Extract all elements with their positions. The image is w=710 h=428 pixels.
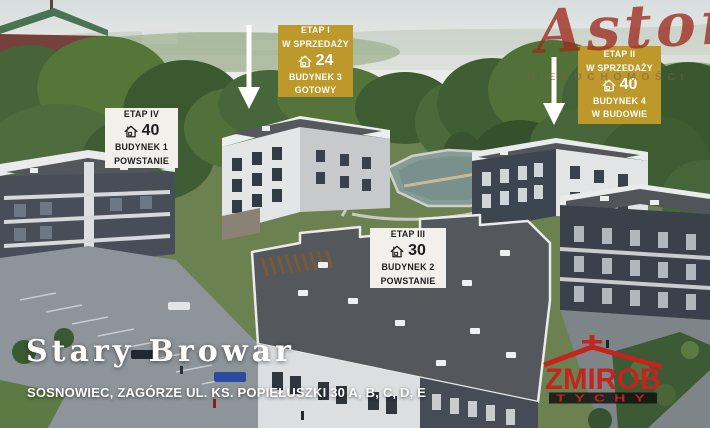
build-status: GOTOWY	[295, 84, 336, 98]
etap-stage: ETAP I	[301, 24, 330, 38]
units-row: 40	[602, 76, 638, 94]
house-icon	[602, 79, 616, 92]
units-count: 40	[142, 122, 160, 140]
callout-etap-3: ETAP III 30 BUDYNEK 2 POWSTANIE	[370, 228, 446, 288]
logo-city: TYCHY	[556, 394, 654, 405]
etap-stage: ETAP III	[391, 228, 425, 242]
etap-stage: ETAP IV	[124, 108, 159, 122]
build-status: W BUDOWIE	[592, 108, 648, 122]
units-count: 30	[408, 242, 426, 260]
build-status: POWSTANIE	[114, 155, 169, 169]
units-row: 24	[298, 52, 334, 70]
building-name: BUDYNEK 1	[115, 141, 168, 155]
units-count: 40	[620, 76, 638, 94]
project-address: SOSNOWIEC, ZAGÓRZE UL. KS. POPIEŁUSZKI 3…	[27, 385, 426, 400]
house-icon	[390, 245, 404, 258]
project-name: Stary Browar	[26, 334, 295, 369]
arrow-down-icon	[543, 57, 565, 125]
logo-name: ZMIROB	[545, 363, 661, 396]
house-icon	[298, 55, 312, 68]
etap-sale-status: W SPRZEDAŻY	[586, 62, 653, 76]
build-status: POWSTANIE	[381, 275, 436, 289]
callout-etap-2: ETAP II W SPRZEDAŻY 40 BUDYNEK 4 W BUDOW…	[578, 46, 661, 124]
etap-stage: ETAP II	[604, 48, 636, 62]
units-count: 24	[316, 52, 334, 70]
units-row: 40	[124, 122, 160, 140]
callout-etap-1: ETAP I W SPRZEDAŻY 24 BUDYNEK 3 GOTOWY	[278, 25, 353, 97]
building-name: BUDYNEK 2	[381, 261, 434, 275]
building-name: BUDYNEK 4	[593, 95, 646, 109]
marketing-render: ETAP I W SPRZEDAŻY 24 BUDYNEK 3 GOTOWY E…	[0, 0, 710, 428]
building-name: BUDYNEK 3	[289, 71, 342, 85]
callout-etap-4: ETAP IV 40 BUDYNEK 1 POWSTANIE	[105, 108, 178, 168]
etap-sale-status: W SPRZEDAŻY	[282, 38, 349, 52]
zmirob-logo: ZMIROB TYCHY	[541, 334, 665, 406]
house-icon	[124, 125, 138, 138]
arrow-down-icon	[238, 25, 260, 109]
units-row: 30	[390, 242, 426, 260]
